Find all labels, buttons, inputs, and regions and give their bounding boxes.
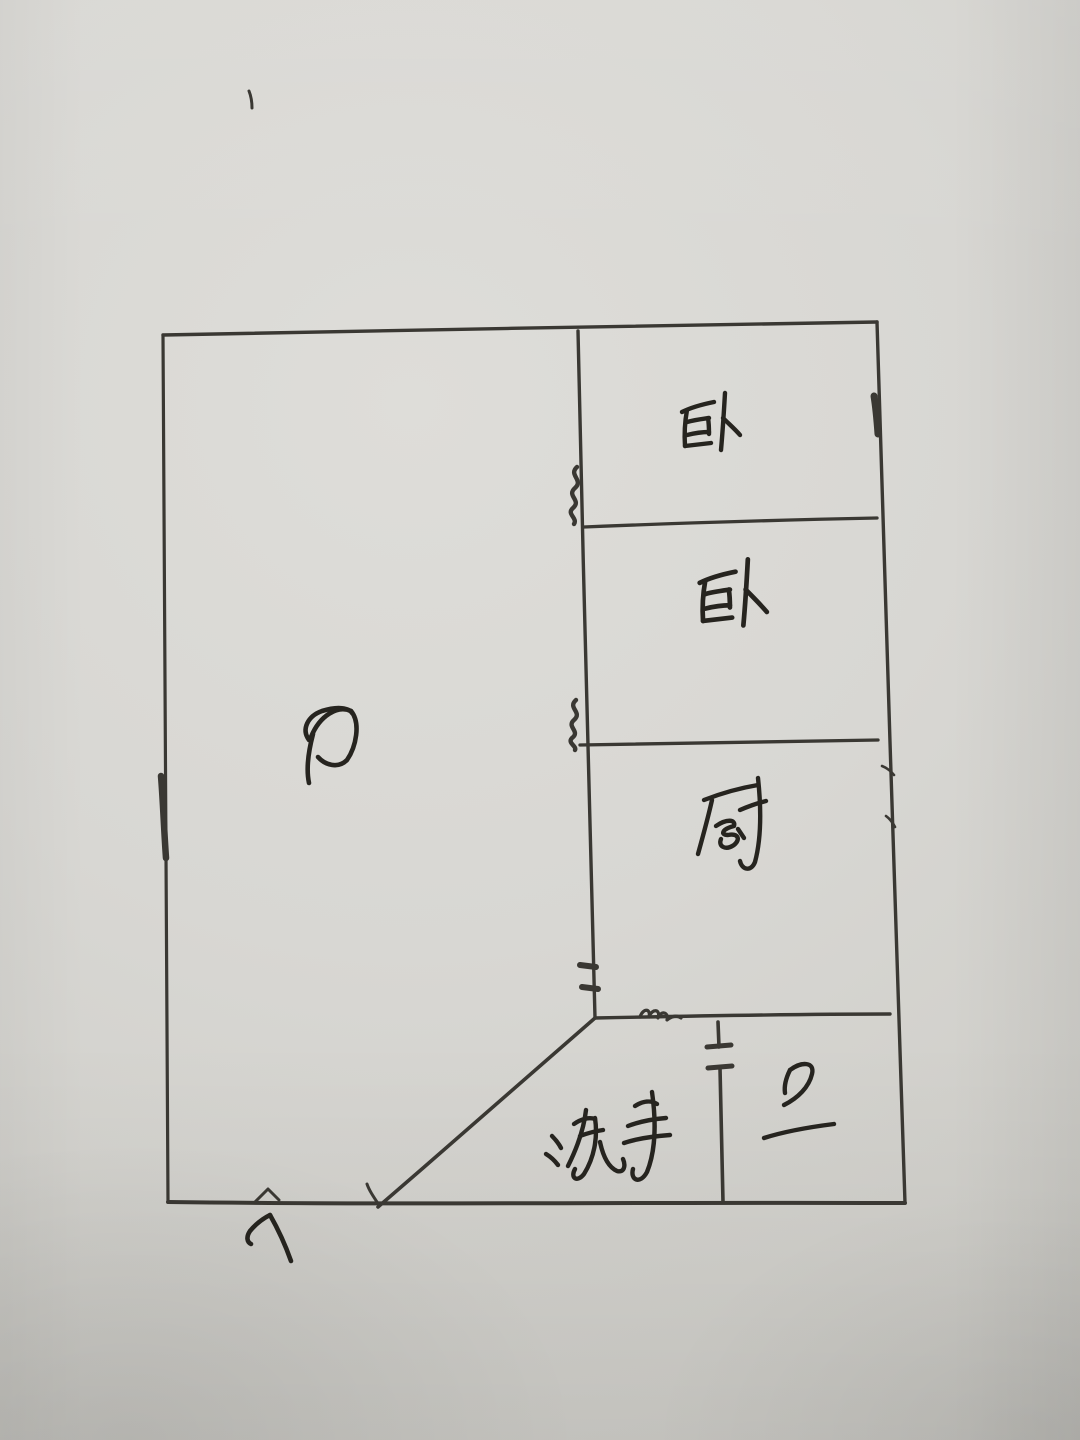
wall-bottom [168,1202,905,1203]
entrance-marks [247,91,291,1261]
wall-right [877,322,905,1203]
wall-left [163,335,168,1202]
wall-top [163,322,877,335]
door-squiggle-bedroom-top [571,467,578,524]
bathroom-label-icon [764,1064,834,1138]
entrance-arrow-head [247,1215,270,1244]
wall-bedroom-kitchen-divider [580,740,878,745]
stray-pen-mark [249,91,252,108]
living-room-label-icon [306,708,357,783]
wall-main-vertical [578,331,595,1018]
wall-right-window-mark [874,396,878,434]
floorplan-drawing [0,0,1080,1440]
bath-divider-stub [718,1022,719,1047]
bath-divider [720,1068,723,1202]
wall-diagonal [378,1018,595,1207]
bedroom-top-label-icon [682,393,740,450]
bath-divider-stub-cap [707,1045,731,1047]
wall-tick-1 [580,965,596,967]
entrance-arrow-shaft [270,1215,291,1261]
washroom-label-icon [546,1092,670,1180]
door-squiggle-kitchen [571,700,577,750]
wall-bedrooms-divider [584,518,877,527]
bedroom-middle-label-icon [700,559,767,625]
floorplan-photo: 厅 卧 卧 厨 洗手 卫 [0,0,1080,1440]
door-notch [255,1189,279,1202]
kitchen-label-icon [698,778,766,869]
wall-tick-2 [582,987,598,989]
